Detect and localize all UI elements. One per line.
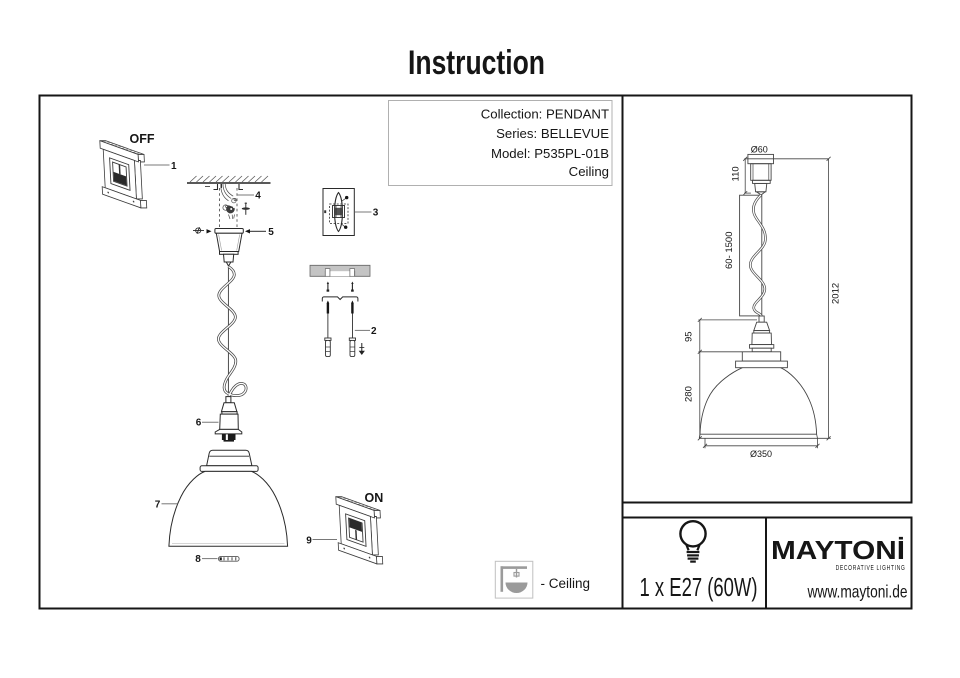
svg-text:Instruction: Instruction (408, 44, 545, 82)
svg-text:9: 9 (306, 535, 312, 546)
svg-text:Model: P535PL-01B: Model: P535PL-01B (491, 146, 609, 161)
svg-text:280: 280 (683, 386, 694, 402)
svg-text:MAYTONİ: MAYTONİ (771, 535, 905, 565)
svg-text:2: 2 (371, 326, 377, 337)
svg-text:5: 5 (268, 227, 274, 238)
svg-text:Ø350: Ø350 (750, 449, 772, 459)
svg-text:3: 3 (373, 207, 379, 218)
svg-text:8: 8 (195, 554, 201, 565)
svg-text:Ceiling: Ceiling (569, 164, 609, 179)
svg-text:Series: BELLEVUE: Series: BELLEVUE (496, 126, 609, 141)
svg-text:95: 95 (683, 331, 694, 342)
svg-text:2012: 2012 (831, 283, 842, 304)
svg-text:www.maytoni.de: www.maytoni.de (807, 582, 908, 602)
svg-text:4: 4 (255, 191, 261, 202)
svg-text:Ø60: Ø60 (751, 145, 768, 155)
svg-text:OFF: OFF (130, 132, 155, 146)
svg-text:ON: ON (365, 491, 384, 505)
svg-text:7: 7 (155, 499, 161, 510)
svg-text:1: 1 (171, 161, 177, 172)
svg-text:60- 1500: 60- 1500 (724, 231, 735, 269)
svg-text:- Ceiling: - Ceiling (541, 576, 591, 591)
svg-text:1 x E27 (60W): 1 x E27 (60W) (640, 574, 758, 602)
svg-text:DECORATIVE LIGHTING: DECORATIVE LIGHTING (836, 565, 906, 572)
svg-text:Collection: PENDANT: Collection: PENDANT (481, 107, 609, 122)
svg-text:6: 6 (196, 417, 202, 428)
svg-text:110: 110 (731, 166, 742, 181)
